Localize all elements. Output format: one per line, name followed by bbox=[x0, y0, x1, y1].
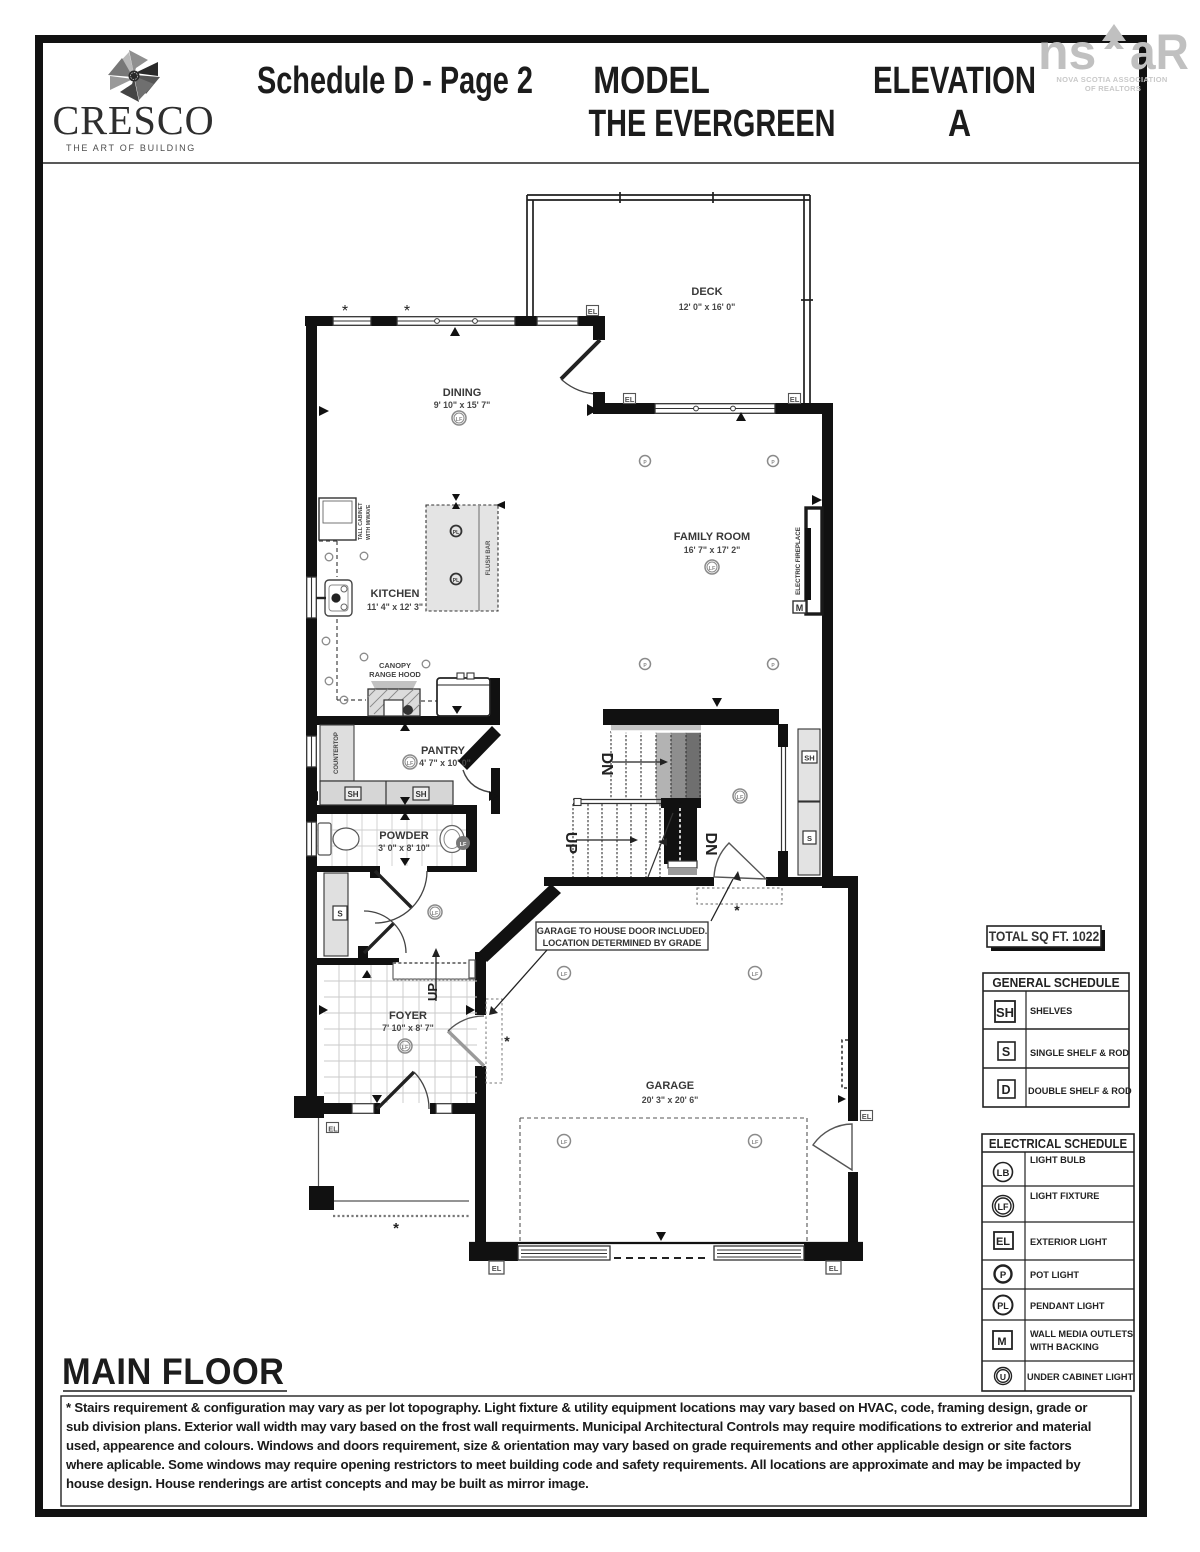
svg-text:P: P bbox=[1000, 1270, 1007, 1281]
svg-text:DN: DN bbox=[702, 832, 719, 855]
svg-text:EL: EL bbox=[862, 1112, 872, 1121]
svg-text:WITH M/WAVE: WITH M/WAVE bbox=[366, 504, 372, 540]
svg-text:EL: EL bbox=[328, 1125, 338, 1134]
svg-text:MAIN FLOOR: MAIN FLOOR bbox=[62, 1351, 285, 1392]
svg-text:LB: LB bbox=[997, 1168, 1010, 1179]
svg-text:M: M bbox=[997, 1336, 1006, 1348]
svg-text:CANOPY: CANOPY bbox=[379, 661, 411, 670]
svg-text:RANGE HOOD: RANGE HOOD bbox=[369, 670, 421, 679]
svg-text:TOTAL SQ FT. 1022: TOTAL SQ FT. 1022 bbox=[989, 928, 1100, 944]
svg-text:D: D bbox=[1001, 1083, 1010, 1097]
svg-text:FLUSH BAR: FLUSH BAR bbox=[486, 540, 492, 575]
svg-text:FOYER: FOYER bbox=[389, 1010, 427, 1022]
svg-text:LF: LF bbox=[456, 417, 463, 423]
svg-text:UP: UP bbox=[562, 832, 579, 855]
svg-text:11' 4" x 12' 3": 11' 4" x 12' 3" bbox=[367, 602, 423, 612]
svg-text:GARAGE: GARAGE bbox=[646, 1080, 694, 1092]
svg-text:EL: EL bbox=[492, 1264, 502, 1273]
svg-text:KITCHEN: KITCHEN bbox=[371, 588, 420, 600]
svg-text:EL: EL bbox=[996, 1236, 1010, 1248]
svg-text:POT LIGHT: POT LIGHT bbox=[1030, 1270, 1079, 1280]
svg-text:used, appearence and colours.: used, appearence and colours. Windows an… bbox=[66, 1438, 1072, 1453]
svg-text:LIGHT FIXTURE: LIGHT FIXTURE bbox=[1030, 1191, 1099, 1201]
svg-text:ELECTRICAL SCHEDULE: ELECTRICAL SCHEDULE bbox=[989, 1136, 1127, 1151]
svg-text:OF REALTORS: OF REALTORS bbox=[1085, 84, 1141, 93]
svg-text:ELEVATION: ELEVATION bbox=[873, 59, 1036, 102]
svg-text:GARAGE TO HOUSE DOOR INCLUDED.: GARAGE TO HOUSE DOOR INCLUDED. bbox=[537, 926, 707, 936]
svg-text:*: * bbox=[393, 1220, 399, 1237]
svg-text:12' 0" x 16' 0": 12' 0" x 16' 0" bbox=[679, 302, 736, 312]
svg-text:PL: PL bbox=[453, 530, 459, 536]
svg-text:EL: EL bbox=[588, 307, 598, 316]
svg-text:THE EVERGREEN: THE EVERGREEN bbox=[588, 102, 835, 145]
svg-text:WITH BACKING: WITH BACKING bbox=[1030, 1342, 1099, 1352]
svg-text:UP: UP bbox=[425, 983, 440, 1001]
svg-text:COUNTERTOP: COUNTERTOP bbox=[334, 732, 340, 774]
svg-text:TALL CABINET: TALL CABINET bbox=[358, 502, 364, 540]
svg-text:DN: DN bbox=[598, 752, 615, 775]
svg-text:PL: PL bbox=[997, 1301, 1009, 1311]
svg-text:LF: LF bbox=[752, 972, 759, 978]
svg-text:sub division plans. Exterior w: sub division plans. Exterior wall width … bbox=[66, 1419, 1091, 1434]
svg-text:* Stairs requirement & configu: * Stairs requirement & configuration may… bbox=[66, 1400, 1087, 1415]
svg-text:UNDER CABINET LIGHT: UNDER CABINET LIGHT bbox=[1027, 1372, 1134, 1382]
svg-text:LF: LF bbox=[432, 911, 439, 917]
svg-text:20' 3" x 20' 6": 20' 3" x 20' 6" bbox=[642, 1095, 699, 1105]
svg-text:U: U bbox=[1000, 1372, 1006, 1382]
svg-text:S: S bbox=[1002, 1045, 1010, 1059]
svg-text:SHELVES: SHELVES bbox=[1030, 1006, 1072, 1016]
svg-text:DINING: DINING bbox=[443, 387, 482, 399]
svg-text:LF: LF bbox=[561, 972, 568, 978]
svg-text:EL: EL bbox=[625, 395, 635, 404]
svg-text:FAMILY ROOM: FAMILY ROOM bbox=[674, 531, 750, 543]
svg-text:DECK: DECK bbox=[691, 286, 722, 298]
svg-text:THE ART OF BUILDING: THE ART OF BUILDING bbox=[66, 143, 196, 153]
svg-text:ns: ns bbox=[1038, 24, 1096, 80]
svg-text:*: * bbox=[734, 902, 740, 918]
svg-text:LF: LF bbox=[737, 795, 744, 801]
svg-text:LIGHT BULB: LIGHT BULB bbox=[1030, 1155, 1086, 1165]
svg-text:LF: LF bbox=[561, 1140, 568, 1146]
svg-text:4' 7" x 10' 0": 4' 7" x 10' 0" bbox=[419, 758, 471, 768]
svg-text:EL: EL bbox=[790, 395, 800, 404]
svg-text:ELECTRIC FIREPLACE: ELECTRIC FIREPLACE bbox=[795, 527, 802, 595]
svg-text:A: A bbox=[948, 102, 971, 144]
svg-text:MODEL: MODEL bbox=[593, 60, 710, 102]
svg-text:SINGLE SHELF & ROD: SINGLE SHELF & ROD bbox=[1030, 1048, 1129, 1058]
svg-text:LF: LF bbox=[998, 1202, 1009, 1212]
svg-text:M: M bbox=[796, 603, 804, 613]
svg-text:16' 7" x 17' 2": 16' 7" x 17' 2" bbox=[684, 545, 741, 555]
svg-text:7' 10" x 8' 7": 7' 10" x 8' 7" bbox=[382, 1023, 434, 1033]
svg-text:*: * bbox=[342, 303, 348, 320]
svg-text:NOVA SCOTIA ASSOCIATION: NOVA SCOTIA ASSOCIATION bbox=[1056, 75, 1167, 84]
svg-text:SH: SH bbox=[996, 1005, 1014, 1020]
svg-text:*: * bbox=[504, 1033, 510, 1049]
svg-text:LF: LF bbox=[460, 842, 467, 848]
svg-text:WALL MEDIA OUTLETS: WALL MEDIA OUTLETS bbox=[1030, 1329, 1133, 1339]
svg-text:LF: LF bbox=[752, 1140, 759, 1146]
svg-text:PENDANT LIGHT: PENDANT LIGHT bbox=[1030, 1301, 1105, 1311]
svg-text:where aplicable. Some windows: where aplicable. Some windows may requir… bbox=[65, 1457, 1081, 1472]
svg-text:LF: LF bbox=[407, 761, 414, 767]
svg-text:Schedule D - Page 2: Schedule D - Page 2 bbox=[257, 59, 533, 102]
svg-text:GENERAL SCHEDULE: GENERAL SCHEDULE bbox=[992, 976, 1119, 991]
svg-text:POWDER: POWDER bbox=[379, 830, 429, 842]
svg-text:LOCATION DETERMINED BY GRADE: LOCATION DETERMINED BY GRADE bbox=[543, 938, 702, 948]
svg-text:SH: SH bbox=[415, 790, 426, 799]
svg-text:EXTERIOR LIGHT: EXTERIOR LIGHT bbox=[1030, 1237, 1107, 1247]
svg-text:*: * bbox=[404, 303, 410, 320]
svg-text:EL: EL bbox=[829, 1264, 839, 1273]
svg-text:LF: LF bbox=[709, 566, 716, 572]
svg-text:S: S bbox=[807, 834, 812, 843]
svg-text:SH: SH bbox=[347, 790, 358, 799]
svg-text:9' 10" x 15' 7": 9' 10" x 15' 7" bbox=[434, 400, 491, 410]
svg-text:SH: SH bbox=[804, 754, 814, 763]
svg-text:DOUBLE SHELF & ROD: DOUBLE SHELF & ROD bbox=[1028, 1086, 1132, 1096]
svg-text:S: S bbox=[337, 910, 343, 919]
svg-text:PL: PL bbox=[453, 578, 459, 584]
svg-text:CRESCO: CRESCO bbox=[52, 98, 214, 143]
svg-text:3' 0" x 8' 10": 3' 0" x 8' 10" bbox=[378, 843, 430, 853]
svg-text:PANTRY: PANTRY bbox=[421, 745, 466, 757]
svg-text:aR: aR bbox=[1130, 25, 1189, 80]
svg-text:LF: LF bbox=[402, 1045, 409, 1051]
svg-text:house design. House renderings: house design. House renderings are artis… bbox=[66, 1476, 589, 1491]
